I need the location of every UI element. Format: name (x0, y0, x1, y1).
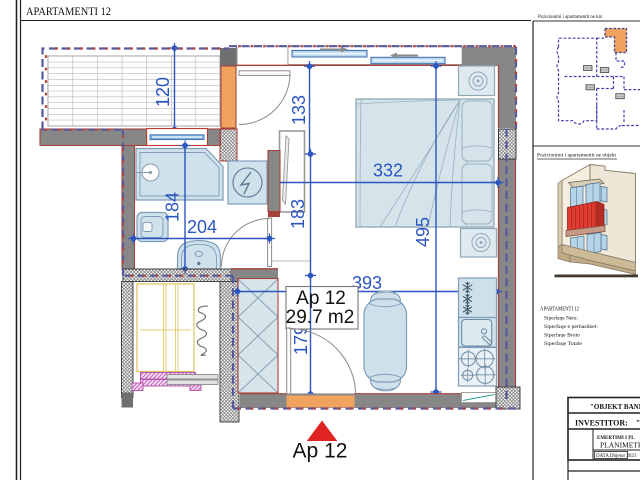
svg-text:INVESTITOR: "S: INVESTITOR: "S (575, 419, 640, 428)
svg-text:183: 183 (288, 199, 308, 229)
svg-text:29.7 m2: 29.7 m2 (286, 307, 355, 328)
svg-text:PLANIMETR: PLANIMETR (600, 441, 640, 450)
svg-text:Pozicionimi i apartamentit ne: Pozicionimi i apartamentit ne kat (538, 15, 603, 20)
svg-text:Ap 12: Ap 12 (293, 440, 348, 463)
svg-text:204: 204 (187, 217, 217, 237)
svg-text:120: 120 (153, 77, 173, 107)
svg-text:DATA Dhjetor 2023: DATA Dhjetor 2023 (596, 454, 637, 459)
svg-text:Siperfaqe Bruto: Siperfaqe Bruto (544, 332, 580, 339)
svg-text:APARTAMENTI 12: APARTAMENTI 12 (26, 4, 111, 18)
svg-text:332: 332 (373, 161, 403, 181)
svg-text:Siperfaqe e perbashket:: Siperfaqe e perbashket: (544, 323, 598, 330)
svg-text:Pozicionimi i apartamentit ne: Pozicionimi i apartamentit ne objekt (537, 154, 617, 159)
svg-text:Siperfaqe Totale: Siperfaqe Totale (544, 340, 583, 347)
svg-text:"OBJEKT BANIM: "OBJEKT BANIM (590, 403, 640, 411)
svg-text:Ap 12: Ap 12 (296, 288, 346, 309)
svg-text:184: 184 (162, 192, 182, 222)
svg-text:APARTAMENTI 12: APARTAMENTI 12 (540, 307, 579, 313)
svg-text:133: 133 (289, 95, 309, 125)
svg-text:Siperfaqe Neto:: Siperfaqe Neto: (544, 315, 578, 322)
svg-text:495: 495 (413, 217, 433, 247)
